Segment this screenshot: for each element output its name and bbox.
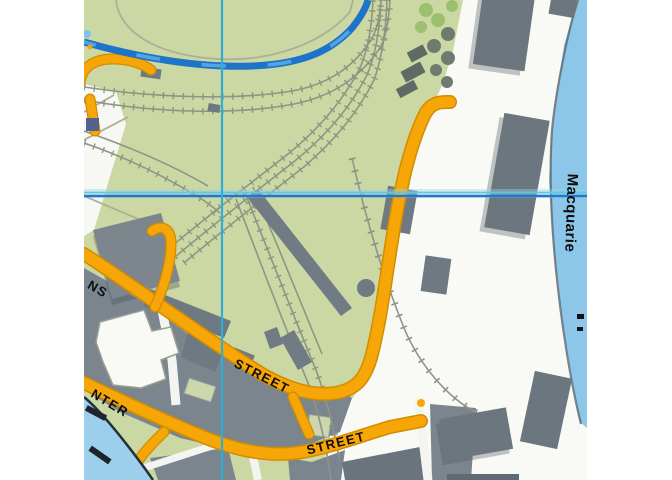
- map-canvas[interactable]: NS STREET NTER STREET Macquarie: [84, 0, 587, 480]
- map-viewport[interactable]: NS STREET NTER STREET Macquarie: [0, 0, 672, 480]
- right-margin: [587, 0, 672, 480]
- blue-structure: [86, 118, 99, 131]
- place-label-macquarie: Macquarie: [561, 173, 581, 252]
- map-layers: [84, 0, 587, 480]
- round-tank: [357, 279, 375, 297]
- left-margin: [0, 0, 84, 480]
